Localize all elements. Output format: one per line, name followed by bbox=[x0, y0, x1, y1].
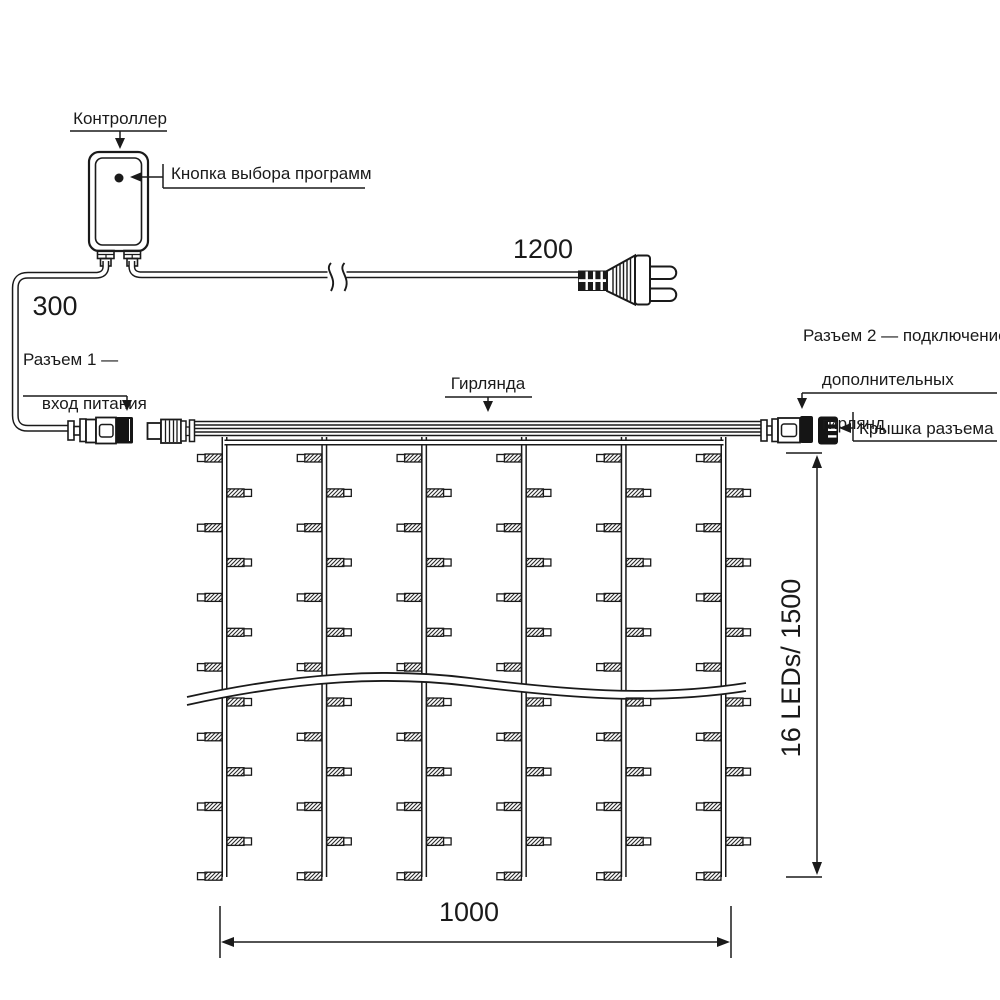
led-lamp bbox=[726, 559, 751, 567]
led-lamp bbox=[297, 803, 322, 811]
led-lamp bbox=[227, 698, 252, 706]
led-lamp bbox=[198, 803, 223, 811]
led-lamp bbox=[697, 524, 722, 532]
diagram-linework bbox=[0, 0, 1000, 1000]
led-lamp bbox=[526, 628, 551, 636]
led-lamp bbox=[626, 559, 651, 567]
led-lamp bbox=[427, 837, 452, 845]
led-lamp bbox=[198, 593, 223, 601]
led-lamp bbox=[597, 524, 622, 532]
led-lamp bbox=[297, 524, 322, 532]
led-lamp bbox=[427, 489, 452, 497]
led-lamp bbox=[227, 489, 252, 497]
led-lamp bbox=[726, 698, 751, 706]
wire-to-plug bbox=[132, 261, 579, 291]
led-lamp bbox=[227, 559, 252, 567]
led-lamp bbox=[726, 837, 751, 845]
led-lamp bbox=[526, 837, 551, 845]
led-lamp bbox=[227, 628, 252, 636]
led-lamp bbox=[526, 559, 551, 567]
led-lamp bbox=[497, 524, 522, 532]
led-lamp bbox=[626, 768, 651, 776]
led-lamp bbox=[397, 524, 422, 532]
led-lamp bbox=[297, 663, 322, 671]
led-lamp bbox=[327, 559, 352, 567]
led-lamp bbox=[427, 628, 452, 636]
led-lamp bbox=[597, 663, 622, 671]
dim-1000-label: 1000 bbox=[419, 899, 519, 926]
led-lamp bbox=[198, 454, 223, 462]
led-lamp bbox=[497, 733, 522, 741]
led-lamp bbox=[427, 559, 452, 567]
led-lamp bbox=[497, 593, 522, 601]
led-lamp bbox=[327, 768, 352, 776]
led-lamp bbox=[397, 733, 422, 741]
led-lamp bbox=[697, 454, 722, 462]
cord-break-icon bbox=[329, 263, 347, 291]
led-lamp bbox=[526, 768, 551, 776]
garland-label: Гирлянда bbox=[438, 373, 538, 395]
dim-1200-label: 1200 bbox=[503, 236, 583, 263]
led-lamp bbox=[597, 733, 622, 741]
plug-strain-relief bbox=[578, 271, 607, 292]
led-lamp bbox=[198, 872, 223, 880]
led-lamp bbox=[427, 698, 452, 706]
led-lamp bbox=[697, 803, 722, 811]
controller-box bbox=[89, 152, 148, 266]
dim-300-label: 300 bbox=[20, 293, 90, 320]
power-plug bbox=[578, 256, 676, 305]
diagram-canvas: Контроллер Кнопка выбора программ 300 12… bbox=[0, 0, 1000, 1000]
led-lamp bbox=[726, 628, 751, 636]
led-lamp bbox=[198, 733, 223, 741]
led-curtain bbox=[187, 437, 751, 880]
led-lamp bbox=[626, 628, 651, 636]
dim-height-label: 16 LEDs/ 1500 bbox=[778, 518, 808, 818]
led-lamp bbox=[198, 663, 223, 671]
led-lamp bbox=[497, 663, 522, 671]
led-lamp bbox=[497, 803, 522, 811]
led-lamp bbox=[597, 872, 622, 880]
led-lamp bbox=[297, 454, 322, 462]
led-lamp bbox=[626, 837, 651, 845]
connector1-black-cap bbox=[116, 417, 133, 444]
cap-label: Крышка разъема bbox=[859, 418, 994, 440]
led-lamp bbox=[697, 593, 722, 601]
led-lamp bbox=[397, 454, 422, 462]
led-lamp bbox=[726, 768, 751, 776]
led-lamp bbox=[427, 768, 452, 776]
led-lamp bbox=[397, 663, 422, 671]
led-lamp bbox=[597, 803, 622, 811]
led-lamp bbox=[697, 663, 722, 671]
led-lamp bbox=[227, 837, 252, 845]
led-lamp bbox=[297, 733, 322, 741]
led-lamp bbox=[297, 593, 322, 601]
plug-prong-top bbox=[650, 267, 676, 280]
led-lamp bbox=[327, 837, 352, 845]
led-lamp bbox=[526, 489, 551, 497]
connector1-female bbox=[68, 417, 133, 444]
connector1-male bbox=[148, 420, 195, 444]
led-lamp bbox=[497, 454, 522, 462]
led-lamp bbox=[327, 698, 352, 706]
led-lamp bbox=[726, 489, 751, 497]
led-lamp bbox=[198, 524, 223, 532]
garland-bus-wire bbox=[195, 422, 762, 436]
plug-prong-bottom bbox=[650, 289, 676, 302]
led-lamp bbox=[497, 872, 522, 880]
connector1-label: Разъем 1 — вход питания bbox=[23, 349, 147, 415]
led-lamp bbox=[327, 628, 352, 636]
led-lamp bbox=[526, 698, 551, 706]
controller-label: Контроллер bbox=[60, 108, 180, 130]
led-lamp bbox=[626, 698, 651, 706]
led-lamp bbox=[626, 489, 651, 497]
led-lamp bbox=[297, 872, 322, 880]
led-lamp bbox=[397, 872, 422, 880]
led-lamp bbox=[397, 803, 422, 811]
led-lamp bbox=[597, 454, 622, 462]
program-button-label: Кнопка выбора программ bbox=[171, 163, 372, 185]
led-lamp bbox=[697, 733, 722, 741]
led-lamp bbox=[327, 489, 352, 497]
program-button-dot bbox=[115, 174, 124, 183]
led-lamp bbox=[597, 593, 622, 601]
led-lamp bbox=[227, 768, 252, 776]
led-lamp bbox=[697, 872, 722, 880]
led-lamp bbox=[397, 593, 422, 601]
plug-face bbox=[635, 256, 650, 305]
